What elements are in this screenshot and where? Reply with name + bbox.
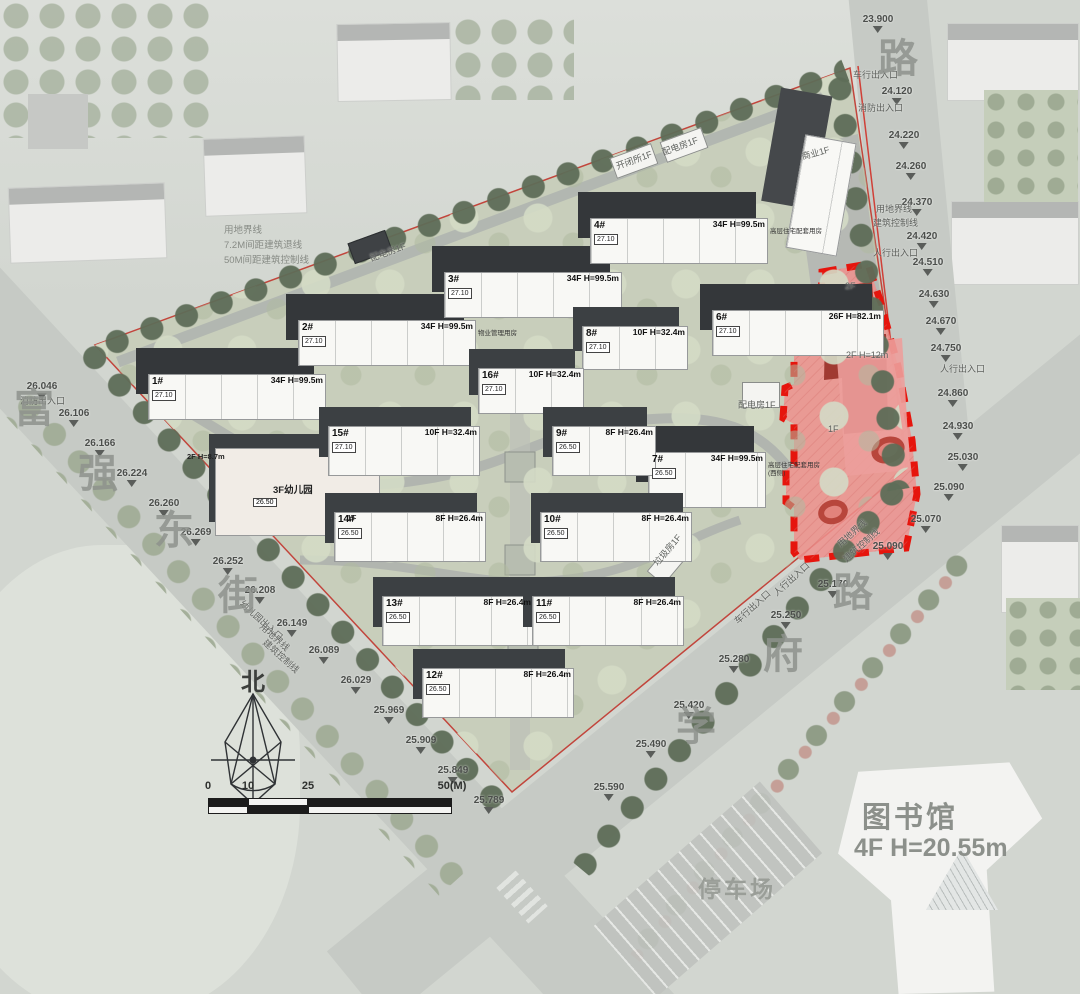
elevation-triangle-icon: [906, 173, 916, 180]
building-height-label: 8F H=26.4m: [473, 598, 531, 608]
elevation-marker: 26.224: [117, 468, 148, 487]
elevation-value: 25.789: [474, 795, 505, 806]
building-2: 2#27.1034F H=99.5m物业管理用房: [298, 320, 476, 366]
street-name-char-southeast: 学: [676, 694, 716, 752]
street-name-char-west: 强: [78, 441, 118, 499]
scalebar-tick: 0: [205, 780, 211, 792]
elevation-marker: 24.510: [913, 257, 944, 276]
plan-label: 2F H=12m: [846, 350, 888, 360]
elevation-value: 24.750: [931, 343, 962, 354]
building-level-badge: 26.50: [426, 684, 450, 695]
elevation-marker: 26.089: [309, 645, 340, 664]
scalebar-tick: 50(M): [438, 780, 467, 792]
building-level-badge: 27.10: [152, 390, 176, 401]
building-height-label: 34F H=99.5m: [415, 322, 473, 332]
elevation-value: 24.220: [889, 130, 920, 141]
library-name-label: 图书馆: [862, 794, 958, 836]
elevation-value: 25.070: [911, 514, 942, 525]
elevation-marker: 24.860: [938, 388, 969, 407]
elevation-marker: 25.490: [636, 739, 667, 758]
building-height-label: 26F H=82.1m: [823, 312, 881, 322]
elevation-value: 24.420: [907, 231, 938, 242]
elevation-triangle-icon: [923, 269, 933, 276]
elevation-triangle-icon: [929, 301, 939, 308]
elevation-value: 26.089: [309, 645, 340, 656]
building-level-badge: 27.10: [586, 342, 610, 353]
building-number-label: 13#: [386, 598, 403, 609]
building-number-label: 4#: [594, 220, 605, 231]
elevation-triangle-icon: [646, 751, 656, 758]
elevation-triangle-icon: [416, 747, 426, 754]
plan-label: 人行出入口: [940, 362, 985, 375]
building-number-label: 16#: [482, 370, 499, 381]
elevation-value: 25.590: [594, 782, 625, 793]
elevation-value: 26.106: [59, 408, 90, 419]
elevation-triangle-icon: [912, 209, 922, 216]
building-number-label: 15#: [332, 428, 349, 439]
building-level-badge: 27.10: [482, 384, 506, 395]
building-level-badge: 26.50: [386, 612, 410, 623]
library-building: 图书馆 4F H=20.55m: [828, 760, 1080, 994]
elevation-triangle-icon: [921, 526, 931, 533]
building-height-label: 34F H=99.5m: [705, 454, 763, 464]
elevation-value: 25.280: [719, 654, 750, 665]
building-note-label: 高层住宅配套用房: [770, 228, 830, 236]
building-level-badge: 26.50: [536, 612, 560, 623]
scale-bar-segment: [248, 806, 308, 814]
elevation-triangle-icon: [69, 420, 79, 427]
elevation-triangle-icon: [953, 433, 963, 440]
elevation-value: 24.120: [882, 86, 913, 97]
building-number-label: 7#: [652, 454, 663, 465]
building-level-badge: 26.50: [544, 528, 568, 539]
library-spec-label: 4F H=20.55m: [854, 834, 1008, 863]
elevation-value: 24.860: [938, 388, 969, 399]
elevation-triangle-icon: [944, 494, 954, 501]
building-note-label: 高层住宅配套用房(西侧): [768, 462, 828, 478]
building-height-label: 8F H=26.4m: [631, 514, 689, 524]
building-number-label: 2#: [302, 322, 313, 333]
building-1: 1#27.1034F H=99.5m: [148, 374, 326, 420]
elevation-marker: 26.106: [59, 408, 90, 427]
kindergarten-level-badge: 26.50: [253, 498, 277, 507]
elevation-value: 24.670: [926, 316, 957, 327]
elevation-triangle-icon: [384, 717, 394, 724]
plan-label: 2F: [845, 281, 856, 291]
elevation-value: 23.900: [863, 14, 894, 25]
elevation-marker: 24.260: [896, 161, 927, 180]
elevation-marker: 25.789: [474, 795, 505, 814]
elevation-triangle-icon: [936, 328, 946, 335]
building-height-label: 8F H=26.4m: [425, 514, 483, 524]
plan-label: 人行出入口: [873, 246, 918, 259]
elevation-triangle-icon: [729, 666, 739, 673]
kindergarten-label: 3F幼儿园: [273, 482, 313, 496]
building-height-label: 34F H=99.5m: [265, 376, 323, 386]
elevation-value: 24.260: [896, 161, 927, 172]
street-name-char-southeast: 路: [833, 560, 873, 618]
building-number-label: 3#: [448, 274, 459, 285]
building-4: 4#27.1034F H=99.5m高层住宅配套用房: [590, 218, 768, 264]
building-level-badge: 27.10: [448, 288, 472, 299]
building-number-label: 8#: [586, 328, 597, 339]
street-name-char-west: 街: [218, 563, 258, 621]
elevation-marker: 25.909: [406, 735, 437, 754]
elevation-marker: 25.090: [873, 541, 904, 560]
elevation-value: 25.250: [771, 610, 802, 621]
street-name-char-north: 路: [878, 26, 918, 84]
elevation-triangle-icon: [899, 142, 909, 149]
boundary-note: 50M间距建筑控制线: [224, 252, 309, 266]
building-height-label: 8F H=26.4m: [513, 670, 571, 680]
parking-label: 停车场: [698, 870, 776, 904]
elevation-triangle-icon: [351, 687, 361, 694]
elevation-value: 24.630: [919, 289, 950, 300]
building-level-badge: 26.50: [338, 528, 362, 539]
site-plan-canvas: 3F幼儿园 2F H=8.7m 26.50 1F 图书馆 4F H=20.55m…: [0, 0, 1080, 994]
building-height-label: 10F H=32.4m: [523, 370, 581, 380]
building-level-badge: 27.10: [594, 234, 618, 245]
kindergarten-height-label: 2F H=8.7m: [187, 452, 229, 461]
elevation-value: 25.490: [636, 739, 667, 750]
building-11: 11#26.508F H=26.4m: [532, 596, 684, 646]
elevation-value: 25.969: [374, 705, 405, 716]
elevation-value: 26.029: [341, 675, 372, 686]
plan-label: 消防出入口: [858, 101, 903, 114]
building-height-label: 10F H=32.4m: [419, 428, 477, 438]
elevation-marker: 25.090: [934, 482, 965, 501]
elevation-triangle-icon: [958, 464, 968, 471]
plan-label: 建筑控制线: [873, 216, 918, 229]
building-number-label: 9#: [556, 428, 567, 439]
elevation-triangle-icon: [319, 657, 329, 664]
elevation-triangle-icon: [287, 630, 297, 637]
boundary-note: 用地界线: [224, 222, 262, 236]
elevation-value: 25.849: [438, 765, 469, 776]
elevation-marker: 25.590: [594, 782, 625, 801]
building-level-badge: 26.50: [556, 442, 580, 453]
elevation-marker: 24.220: [889, 130, 920, 149]
elevation-value: 25.090: [934, 482, 965, 493]
building-13: 13#26.508F H=26.4m: [382, 596, 534, 646]
building-8: 8#27.1010F H=32.4m: [582, 326, 688, 370]
building-height-label: 34F H=99.5m: [561, 274, 619, 284]
building-number-label: 11#: [536, 598, 552, 609]
elevation-triangle-icon: [941, 355, 951, 362]
scalebar-tick: 25: [302, 780, 314, 792]
elevation-marker: 25.030: [948, 452, 979, 471]
elevation-marker: 25.070: [911, 514, 942, 533]
elevation-marker: 25.969: [374, 705, 405, 724]
elevation-marker: 24.630: [919, 289, 950, 308]
scale-bar-segment: [248, 798, 308, 806]
elevation-triangle-icon: [604, 794, 614, 801]
scale-bar-segment: [308, 798, 452, 806]
building-9: 9#26.508F H=26.4m: [552, 426, 656, 476]
elevation-triangle-icon: [484, 807, 494, 814]
building-note-label: 物业管理用房: [478, 330, 538, 338]
scale-bar-segment: [208, 798, 248, 806]
plan-label: 1F: [828, 424, 839, 434]
compass-rose: [198, 690, 308, 815]
scale-bar-segment: [208, 806, 248, 814]
building-height-label: 8F H=26.4m: [623, 598, 681, 608]
building-level-badge: 26.50: [652, 468, 676, 479]
street-name-char-west: 富: [14, 376, 54, 434]
elevation-triangle-icon: [917, 243, 927, 250]
building-number-label: 1#: [152, 376, 163, 387]
building-height-label: 34F H=99.5m: [707, 220, 765, 230]
building-level-badge: 27.10: [716, 326, 740, 337]
building-15: 15#27.1010F H=32.4m: [328, 426, 480, 476]
elevation-value: 25.030: [948, 452, 979, 463]
building-height-label: 8F H=26.4m: [595, 428, 653, 438]
building-level-badge: 27.10: [332, 442, 356, 453]
building-number-label: 10#: [544, 514, 561, 525]
elevation-marker: 24.930: [943, 421, 974, 440]
elevation-marker: 25.280: [719, 654, 750, 673]
building-14: 14#26.508F H=26.4m: [334, 512, 486, 562]
elevation-value: 26.224: [117, 468, 148, 479]
elevation-marker: 24.750: [931, 343, 962, 362]
plan-label: 用地界线: [876, 202, 912, 215]
plan-label: 配电房1F: [738, 398, 776, 411]
building-level-badge: 27.10: [302, 336, 326, 347]
elevation-marker: 24.670: [926, 316, 957, 335]
street-name-char-west: 东: [154, 498, 194, 556]
elevation-value: 26.149: [277, 618, 308, 629]
elevation-triangle-icon: [948, 400, 958, 407]
elevation-value: 25.090: [873, 541, 904, 552]
building-12: 12#26.508F H=26.4m: [422, 668, 574, 718]
elevation-triangle-icon: [127, 480, 137, 487]
building-number-label: 12#: [426, 670, 443, 681]
building-height-label: 10F H=32.4m: [627, 328, 685, 338]
building-number-label: 6#: [716, 312, 727, 323]
building-number-label: 14#: [338, 514, 355, 525]
elevation-value: 25.909: [406, 735, 437, 746]
boundary-note: 7.2M间距建筑退线: [224, 237, 302, 251]
street-name-char-southeast: 府: [763, 622, 803, 680]
elevation-triangle-icon: [883, 553, 893, 560]
scalebar-tick: 10: [242, 780, 254, 792]
scale-bar-segment: [308, 806, 452, 814]
elevation-value: 24.930: [943, 421, 974, 432]
elevation-marker: 26.029: [341, 675, 372, 694]
